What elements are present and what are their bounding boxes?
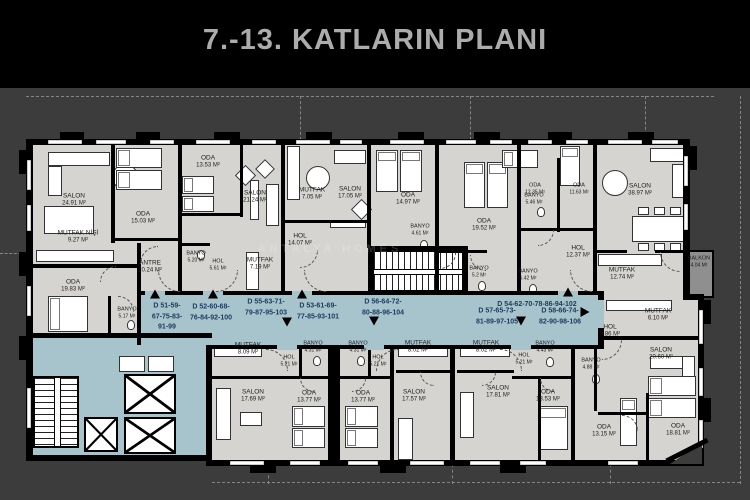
bed <box>376 150 398 192</box>
room-name: BANYO <box>469 266 488 273</box>
room-area: 4.04 M² <box>688 262 710 268</box>
elevator-x-icon <box>126 376 174 412</box>
room-name: HOL <box>210 259 227 266</box>
room-name: SALON <box>62 193 86 201</box>
room-label: MUTFAK7.19 M² <box>247 257 273 272</box>
sofa <box>48 152 110 166</box>
room-name: MUTFAK <box>405 340 431 348</box>
table <box>148 356 174 372</box>
room-name: ODA <box>666 423 690 431</box>
room-label: ODA18.81 M² <box>666 423 690 438</box>
apartment-number-line: D 58-66-74- <box>539 307 581 318</box>
window <box>470 461 500 465</box>
apartment-number-label: D 55-63-71-79-87-95-103 <box>245 298 287 319</box>
column <box>398 132 424 139</box>
wall <box>571 347 575 461</box>
room-label: MUTFAK12.74 M² <box>609 267 635 282</box>
window <box>528 140 552 144</box>
room-label: ODA13.53 M² <box>536 389 560 404</box>
window <box>566 140 588 144</box>
room-name: ODA <box>351 390 375 398</box>
apartment-number-line: D 55-63-71- <box>245 298 287 309</box>
room-name: ANTRE <box>138 260 162 268</box>
room-name: MUTFAK NİŞİ <box>58 230 99 238</box>
apartment-number-line: 77-85-93-101 <box>297 312 339 323</box>
room-label: HOL5.61 M² <box>210 259 227 272</box>
entrance-arrow-icon <box>516 317 526 326</box>
wall <box>240 145 243 217</box>
room-name: BANYO <box>117 307 136 314</box>
room-name: ODA <box>131 211 155 219</box>
room-area: 5.21 M² <box>516 359 533 365</box>
window <box>608 140 642 144</box>
room-area: 4.88 M² <box>581 364 600 370</box>
entrance-arrow-icon <box>563 288 573 297</box>
window <box>48 140 82 144</box>
room-label: HOL5.21 M² <box>281 355 298 368</box>
room-name: ODA <box>61 279 85 287</box>
chair <box>638 243 649 251</box>
room-label: BANYO5.46 M² <box>524 193 543 206</box>
room-label: ODA14.97 M² <box>396 192 420 207</box>
wall <box>281 145 285 291</box>
window <box>390 140 424 144</box>
wall <box>597 250 627 253</box>
wall <box>450 347 455 461</box>
room-name: BANYO <box>581 358 600 365</box>
wall <box>646 393 649 461</box>
column <box>500 466 526 473</box>
room-name: BANYO <box>303 341 322 348</box>
wall <box>206 345 212 466</box>
room-area: 13.53 M² <box>536 396 560 403</box>
property-line <box>740 96 741 484</box>
room-label: BANYO5.20 M² <box>186 251 205 264</box>
window <box>296 140 330 144</box>
room-area: 4.61 M² <box>410 230 429 236</box>
window <box>348 461 378 465</box>
apartment-number-label: D 56-64-72-80-88-96-104 <box>362 298 404 319</box>
room-label: MUTFAK8.02 M² <box>473 340 499 355</box>
floor-plan: ANTALYA HOMES SALON24.91 M²MUTFAK NİŞİ9.… <box>0 0 750 500</box>
room-area: 4.31 M² <box>303 347 322 353</box>
room-name: ODA <box>592 424 616 432</box>
room-area: 5.61 M² <box>210 265 227 271</box>
room-label: ANTRE10.24 M² <box>138 260 162 275</box>
window <box>27 160 31 190</box>
room-area: 13.77 M² <box>351 397 375 404</box>
bed <box>292 406 325 427</box>
apartment-number-line: 82-90-98-106 <box>539 317 581 328</box>
window <box>96 140 126 144</box>
entrance-arrow-icon <box>297 290 307 299</box>
column <box>60 132 84 139</box>
room-label: SALON38.97 M² <box>628 183 652 198</box>
room-label: SALON17.05 M² <box>338 186 362 201</box>
room-label: BANYO4.31 M² <box>348 341 367 354</box>
room-name: SALON <box>241 389 265 397</box>
room-name: ODA <box>297 390 321 398</box>
room-name: MUTFAK <box>299 187 325 195</box>
window <box>150 140 174 144</box>
sofa <box>266 184 279 226</box>
wall <box>683 294 704 300</box>
window <box>27 388 31 428</box>
room-label: ODA19.83 M² <box>61 279 85 294</box>
room-name: ODA <box>196 155 220 163</box>
wall <box>517 228 596 231</box>
room-area: 21.24 M² <box>243 197 267 204</box>
kitchen-counter <box>598 254 662 266</box>
window <box>340 140 362 144</box>
room-label: ODA13.77 M² <box>297 390 321 405</box>
chair <box>670 207 681 215</box>
sofa <box>48 166 62 196</box>
room-label: HOL9.86 M² <box>600 324 620 339</box>
window <box>290 461 320 465</box>
column <box>548 132 572 139</box>
room-label: HOL12.37 M² <box>566 245 590 260</box>
room-name: MUTFAK <box>247 257 273 265</box>
column <box>19 336 26 360</box>
wall <box>137 291 141 345</box>
entrance-arrow-icon <box>150 290 160 299</box>
chair <box>654 207 665 215</box>
property-line <box>610 464 611 484</box>
apartment-number-line: 79-87-95-103 <box>245 308 287 319</box>
room-area: 12.37 M² <box>566 252 590 259</box>
property-line <box>470 96 471 140</box>
room-label: SALON17.57 M² <box>402 389 426 404</box>
room-label: SALON21.24 M² <box>243 190 267 205</box>
entrance-arrow-icon <box>208 290 218 299</box>
elevator <box>124 417 176 454</box>
wall <box>178 243 210 246</box>
wall <box>435 145 439 291</box>
wall <box>594 347 597 411</box>
room-area: 5.46 M² <box>524 199 543 205</box>
room-area: 5.21 M² <box>281 361 298 367</box>
room-area: 13.77 M² <box>297 397 321 404</box>
bed <box>48 296 88 332</box>
room-area: 24.91 M² <box>62 200 86 207</box>
room-label: ODA13.77 M² <box>351 390 375 405</box>
room-name: SALON <box>402 389 426 397</box>
wall <box>212 376 269 379</box>
apartment-number-line: D 51-59- <box>152 301 182 312</box>
room-area: 5.21 M² <box>370 361 387 367</box>
window <box>699 368 703 396</box>
room-name: BANYO <box>535 341 554 348</box>
wall <box>340 376 392 379</box>
elevator-x-icon <box>86 419 116 450</box>
sofa <box>216 388 231 440</box>
bed <box>345 428 378 448</box>
wall <box>367 145 371 248</box>
room-label: BANYO4.31 M² <box>303 341 322 354</box>
window <box>27 286 31 316</box>
room-label: MUTFAK8.02 M² <box>405 340 431 355</box>
column <box>19 252 26 276</box>
floor-plan-page: 7.-13. KATLARIN PLANI ANTALYA HOMES SALO… <box>0 0 750 500</box>
room-label: BANYO6.42 M² <box>518 269 537 282</box>
entrance-arrow-icon <box>282 318 292 327</box>
room-name: ODA <box>472 218 496 226</box>
room-area: 7.05 M² <box>299 194 325 201</box>
apartment-number-label: D 57-65-73-81-89-97-105 <box>476 307 518 328</box>
room-area: 17.57 M² <box>402 396 426 403</box>
room-name: HOL <box>281 355 298 362</box>
room-area: 19.83 M² <box>61 286 85 293</box>
apartment-number-line: 91-99 <box>152 322 182 333</box>
toilet <box>546 357 554 367</box>
bed <box>648 376 696 396</box>
apartment-number-line: D 57-65-73- <box>476 307 518 318</box>
room-area: 8.02 M² <box>473 347 499 354</box>
room-area: 5.17 M² <box>117 313 136 319</box>
kitchen-counter <box>36 250 114 262</box>
wall <box>108 296 111 338</box>
room-name: BANYO <box>186 251 205 258</box>
column <box>19 150 26 174</box>
room-name: MUTFAK <box>645 308 671 316</box>
window <box>252 140 276 144</box>
bed <box>182 196 214 212</box>
bed <box>560 146 580 186</box>
room-name: BALKON <box>688 256 710 263</box>
property-line <box>212 482 740 483</box>
apartment-number-label: D 58-66-74-82-90-98-106 <box>539 307 581 328</box>
room-area: 14.97 M² <box>396 199 420 206</box>
toilet <box>313 356 321 366</box>
elevator-x-icon <box>126 419 174 452</box>
room-label: BANYO4.43 M² <box>535 341 554 354</box>
room-name: HOL <box>288 233 312 241</box>
room-label: ODA15.03 M² <box>131 211 155 226</box>
column <box>250 466 276 473</box>
wall <box>111 145 115 243</box>
room-area: 10.24 M² <box>138 267 162 274</box>
apartment-number-line: D 53-61-69- <box>297 302 339 313</box>
sofa <box>398 418 413 460</box>
table <box>240 412 262 426</box>
column <box>380 466 406 473</box>
wall <box>328 347 340 461</box>
wall <box>557 158 560 232</box>
room-label: SALON20.60 M² <box>649 347 673 362</box>
room-area: 5.20 M² <box>186 257 205 263</box>
room-area: 18.81 M² <box>666 430 690 437</box>
table <box>119 356 145 372</box>
bed <box>292 428 325 448</box>
toilet <box>537 207 545 217</box>
room-name: SALON <box>243 190 267 198</box>
apartment-number-line: 76-84-92-100 <box>190 313 232 324</box>
sofa <box>650 148 684 162</box>
wall <box>26 455 212 461</box>
column <box>628 132 654 139</box>
room-area: 38.97 M² <box>628 190 652 197</box>
door-opening <box>277 345 297 350</box>
room-name: HOL <box>516 353 533 360</box>
room-area: 4.31 M² <box>348 347 367 353</box>
room-name: SALON <box>338 186 362 194</box>
apartment-number-label: D 51-59-67-75-83-91-99 <box>152 301 182 333</box>
room-area: 6.10 M² <box>645 315 671 322</box>
entrance-arrow-icon <box>581 307 590 317</box>
room-name: MUTFAK <box>235 342 261 350</box>
wall <box>593 145 597 291</box>
wall <box>178 213 243 216</box>
column <box>474 132 500 139</box>
window <box>27 205 31 231</box>
apartment-number-line: D 52-60-68- <box>190 303 232 314</box>
entrance-arrow-icon <box>369 317 379 326</box>
room-name: HOL <box>600 324 620 332</box>
room-label: SALON24.91 M² <box>62 193 86 208</box>
bed <box>116 170 162 190</box>
wall <box>464 246 468 295</box>
staircase <box>33 376 79 448</box>
room-name: SALON <box>649 347 673 355</box>
apartment-number-line: 67-75-83- <box>152 312 182 323</box>
room-name: SALON <box>628 183 652 191</box>
wall <box>26 333 212 338</box>
window <box>699 310 703 344</box>
window <box>196 140 230 144</box>
elevator <box>84 417 118 452</box>
room-label: BALKON4.04 M² <box>688 256 710 269</box>
bed <box>538 406 568 450</box>
room-name: HOL <box>566 245 590 253</box>
room-name: ODA <box>396 192 420 200</box>
room-area: 19.52 M² <box>472 225 496 232</box>
window <box>608 461 638 465</box>
room-label: BANYO5.17 M² <box>117 307 136 320</box>
property-line <box>26 96 714 97</box>
room-label: SALON17.81 M² <box>486 385 510 400</box>
room-name: HOL <box>370 355 387 362</box>
elevator <box>124 374 176 414</box>
room-area: 9.27 M² <box>58 237 99 244</box>
window <box>446 140 476 144</box>
room-name: BANYO <box>348 341 367 348</box>
toilet <box>357 356 365 366</box>
wall <box>111 238 182 241</box>
column <box>136 132 160 139</box>
room-name: BANYO <box>524 193 543 200</box>
room-area: 12.74 M² <box>609 274 635 281</box>
table <box>632 216 686 242</box>
column <box>704 300 711 324</box>
room-area: 4.43 M² <box>535 347 554 353</box>
sofa <box>334 150 366 164</box>
room-label: MUTFAK8.09 M² <box>235 342 261 357</box>
room-area: 17.81 M² <box>486 392 510 399</box>
room-area: 13.53 M² <box>196 162 220 169</box>
window <box>520 461 546 465</box>
window <box>410 461 444 465</box>
wall <box>33 264 137 268</box>
room-area: 8.09 M² <box>235 349 261 356</box>
door-opening <box>511 345 531 350</box>
room-name: ODA <box>536 389 560 397</box>
room-label: BANYO4.61 M² <box>410 224 429 237</box>
room-label: MUTFAK7.05 M² <box>299 187 325 202</box>
room-area: 20.60 M² <box>649 354 673 361</box>
window <box>490 140 512 144</box>
apartment-number-line: 81-89-97-105 <box>476 317 518 328</box>
bed <box>648 398 696 418</box>
room-area: 7.19 M² <box>247 264 273 271</box>
bed <box>400 150 422 192</box>
room-label: HOL5.21 M² <box>370 355 387 368</box>
room-area: 17.69 M² <box>241 396 265 403</box>
room-label: ODA11.63 M² <box>569 183 588 196</box>
bed <box>345 406 378 427</box>
bed <box>487 162 508 208</box>
window <box>230 461 264 465</box>
room-label: ODA19.52 M² <box>472 218 496 233</box>
bed <box>464 162 485 208</box>
room-name: ODA <box>525 183 545 190</box>
wall <box>299 347 302 378</box>
toilet <box>127 320 135 330</box>
room-area: 11.63 M² <box>569 189 588 195</box>
room-area: 9.86 M² <box>600 331 620 338</box>
room-area: 5.2 M² <box>469 272 488 278</box>
watermark: ANTALYA HOMES <box>258 243 403 255</box>
room-label: ODA13.53 M² <box>196 155 220 170</box>
window <box>652 140 678 144</box>
room-name: BANYO <box>518 269 537 276</box>
room-name: MUTFAK <box>609 267 635 275</box>
room-label: ODA13.15 M² <box>592 424 616 439</box>
round-table <box>602 170 628 196</box>
room-area: 15.03 M² <box>131 218 155 225</box>
column <box>306 132 332 139</box>
column <box>690 146 697 170</box>
wall <box>281 220 370 223</box>
room-label: MUTFAK6.10 M² <box>645 308 671 323</box>
property-line <box>300 96 301 140</box>
room-label: BANYO4.88 M² <box>581 358 600 371</box>
apartment-number-label: D 53-61-69-77-85-93-101 <box>297 302 339 323</box>
sofa <box>460 392 474 438</box>
window <box>684 204 688 230</box>
room-name: ODA <box>569 183 588 190</box>
room-label: HOL5.21 M² <box>516 353 533 366</box>
room-area: 13.15 M² <box>592 431 616 438</box>
room-area: 17.05 M² <box>338 193 362 200</box>
room-name: SALON <box>486 385 510 393</box>
room-label: BANYO5.2 M² <box>469 266 488 279</box>
room-name: BANYO <box>410 224 429 231</box>
column <box>214 132 240 139</box>
chair <box>638 207 649 215</box>
bed <box>182 176 214 194</box>
room-area: 8.02 M² <box>405 347 431 354</box>
room-area: 6.42 M² <box>518 275 537 281</box>
property-line <box>452 464 453 484</box>
room-label: SALON17.69 M² <box>241 389 265 404</box>
room-label: MUTFAK NİŞİ9.27 M² <box>58 230 99 245</box>
window <box>684 156 688 186</box>
apartment-number-line: D 56-64-72- <box>362 298 404 309</box>
bed <box>116 148 162 168</box>
toilet <box>478 281 486 291</box>
room-name: MUTFAK <box>473 340 499 348</box>
